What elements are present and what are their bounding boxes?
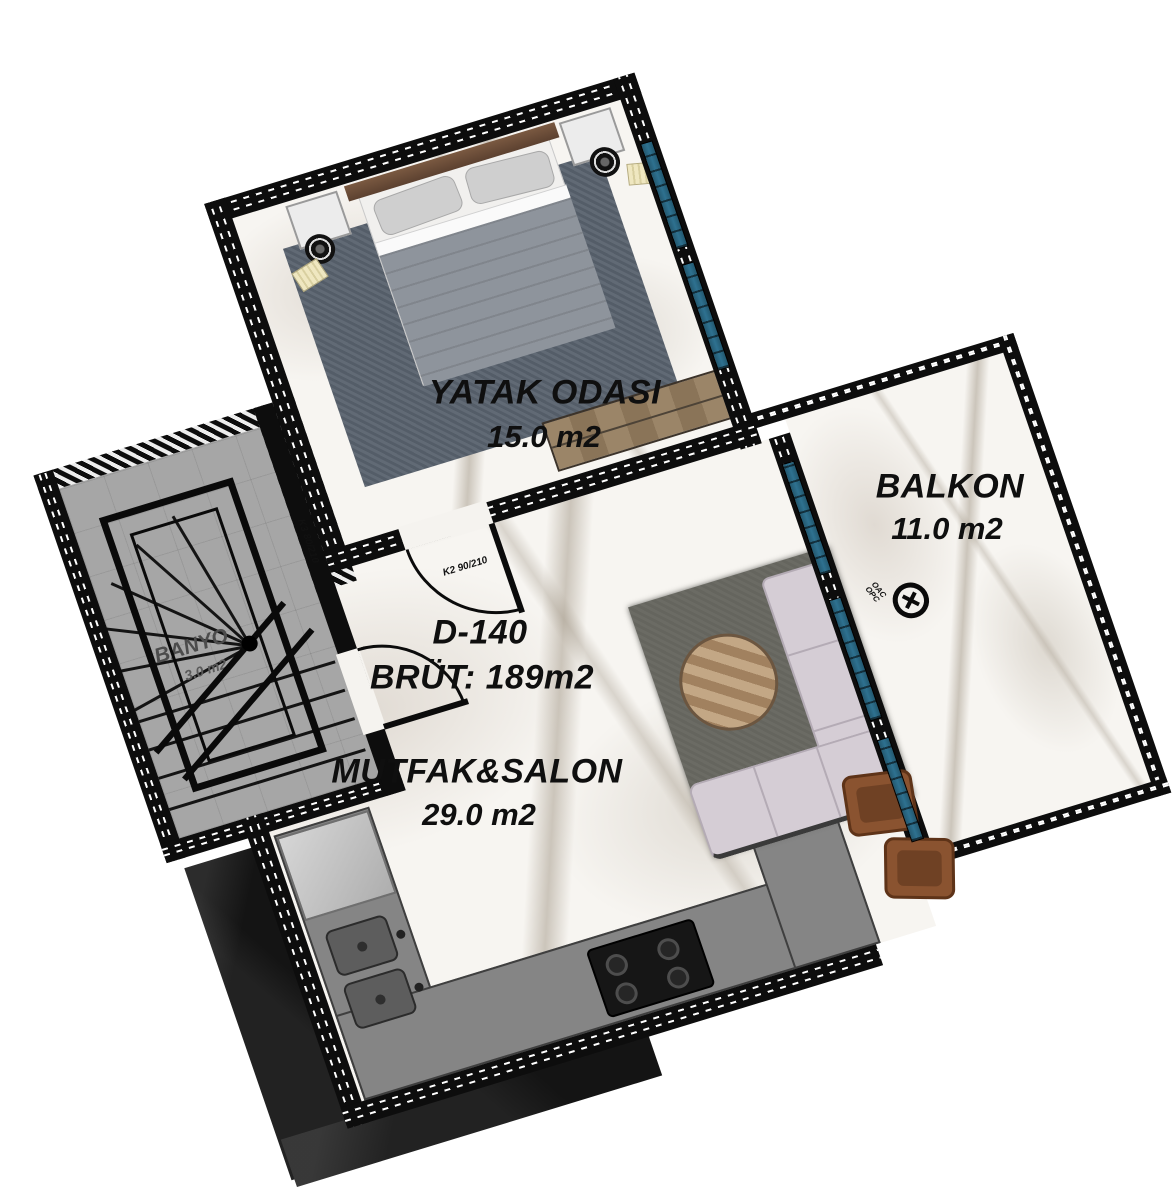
armchair — [884, 837, 956, 899]
burner-icon — [612, 980, 640, 1007]
floor-plan-canvas: BANYO 3.0 m2 K3 80/210 — [0, 0, 1176, 1200]
burner-icon — [603, 951, 631, 978]
balcony-area-label: 11.0 m2 — [891, 511, 1002, 547]
unit-code-label: D-140 — [432, 614, 527, 653]
sofa-cushion-seam — [816, 748, 842, 818]
kitchen-area-label: 29.0 m2 — [422, 797, 536, 833]
bedroom-name-label: YATAK ODASI — [429, 374, 661, 413]
unit-gross-label: BRÜT: 189m2 — [370, 659, 594, 698]
kitchen-name-label: MUTFAK&SALON — [331, 753, 622, 792]
armchair-seat — [897, 850, 942, 886]
bedroom-area-label: 15.0 m2 — [487, 419, 601, 455]
sofa-cushion-seam — [753, 767, 779, 837]
sink-drain — [374, 993, 387, 1005]
sink-drain — [356, 940, 369, 952]
burner-icon — [664, 964, 692, 991]
burner-icon — [654, 936, 682, 963]
floor-plan: BANYO 3.0 m2 K3 80/210 — [0, 0, 1176, 1200]
balcony-name-label: BALKON — [876, 468, 1024, 507]
